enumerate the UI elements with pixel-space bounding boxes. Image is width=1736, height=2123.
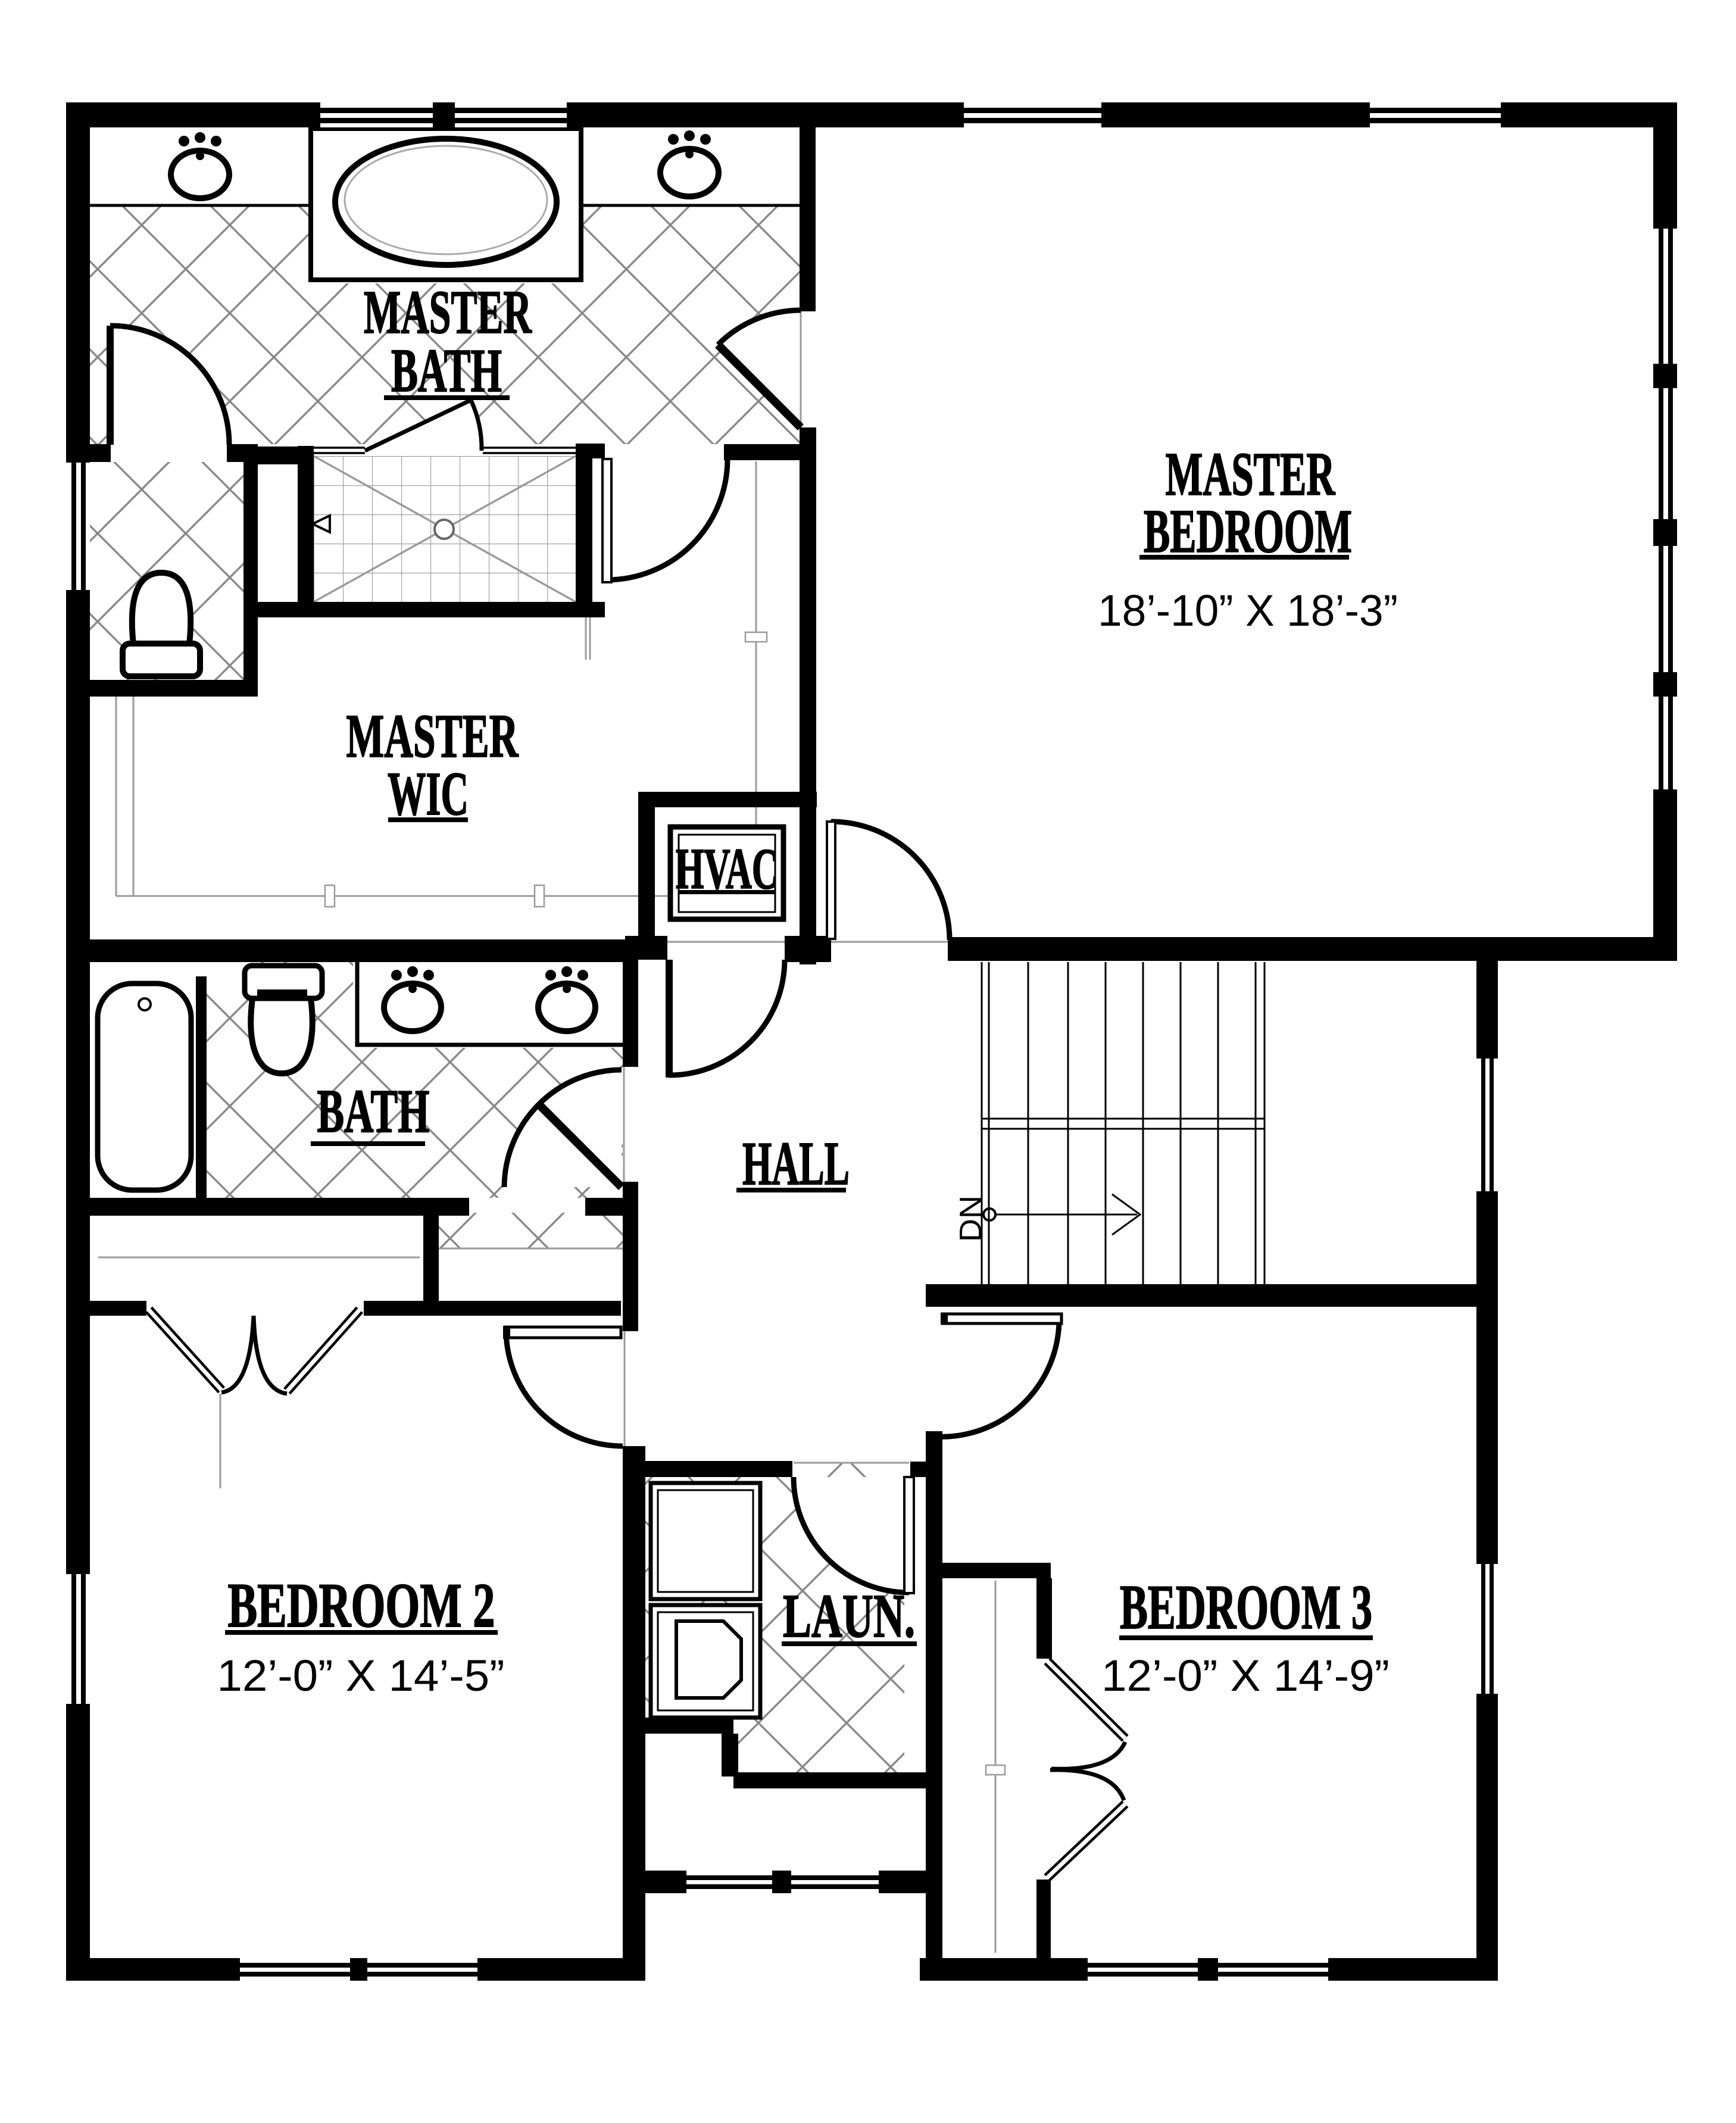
svg-text:BATH: BATH (317, 1077, 430, 1145)
svg-text:HALL: HALL (742, 1129, 850, 1198)
svg-text:BEDROOM 2: BEDROOM 2 (228, 1571, 495, 1640)
svg-text:12’-0” X 14’-9”: 12’-0” X 14’-9” (1101, 1651, 1390, 1700)
svg-text:LAUN.: LAUN. (783, 1582, 915, 1650)
svg-text:BEDROOM 3: BEDROOM 3 (1120, 1572, 1372, 1642)
svg-text:BATH: BATH (391, 336, 502, 405)
svg-text:12’-0” X 14’-5”: 12’-0” X 14’-5” (217, 1651, 505, 1700)
svg-text:DN: DN (954, 1195, 988, 1242)
svg-text:18’-10” X 18’-3”: 18’-10” X 18’-3” (1098, 586, 1398, 635)
